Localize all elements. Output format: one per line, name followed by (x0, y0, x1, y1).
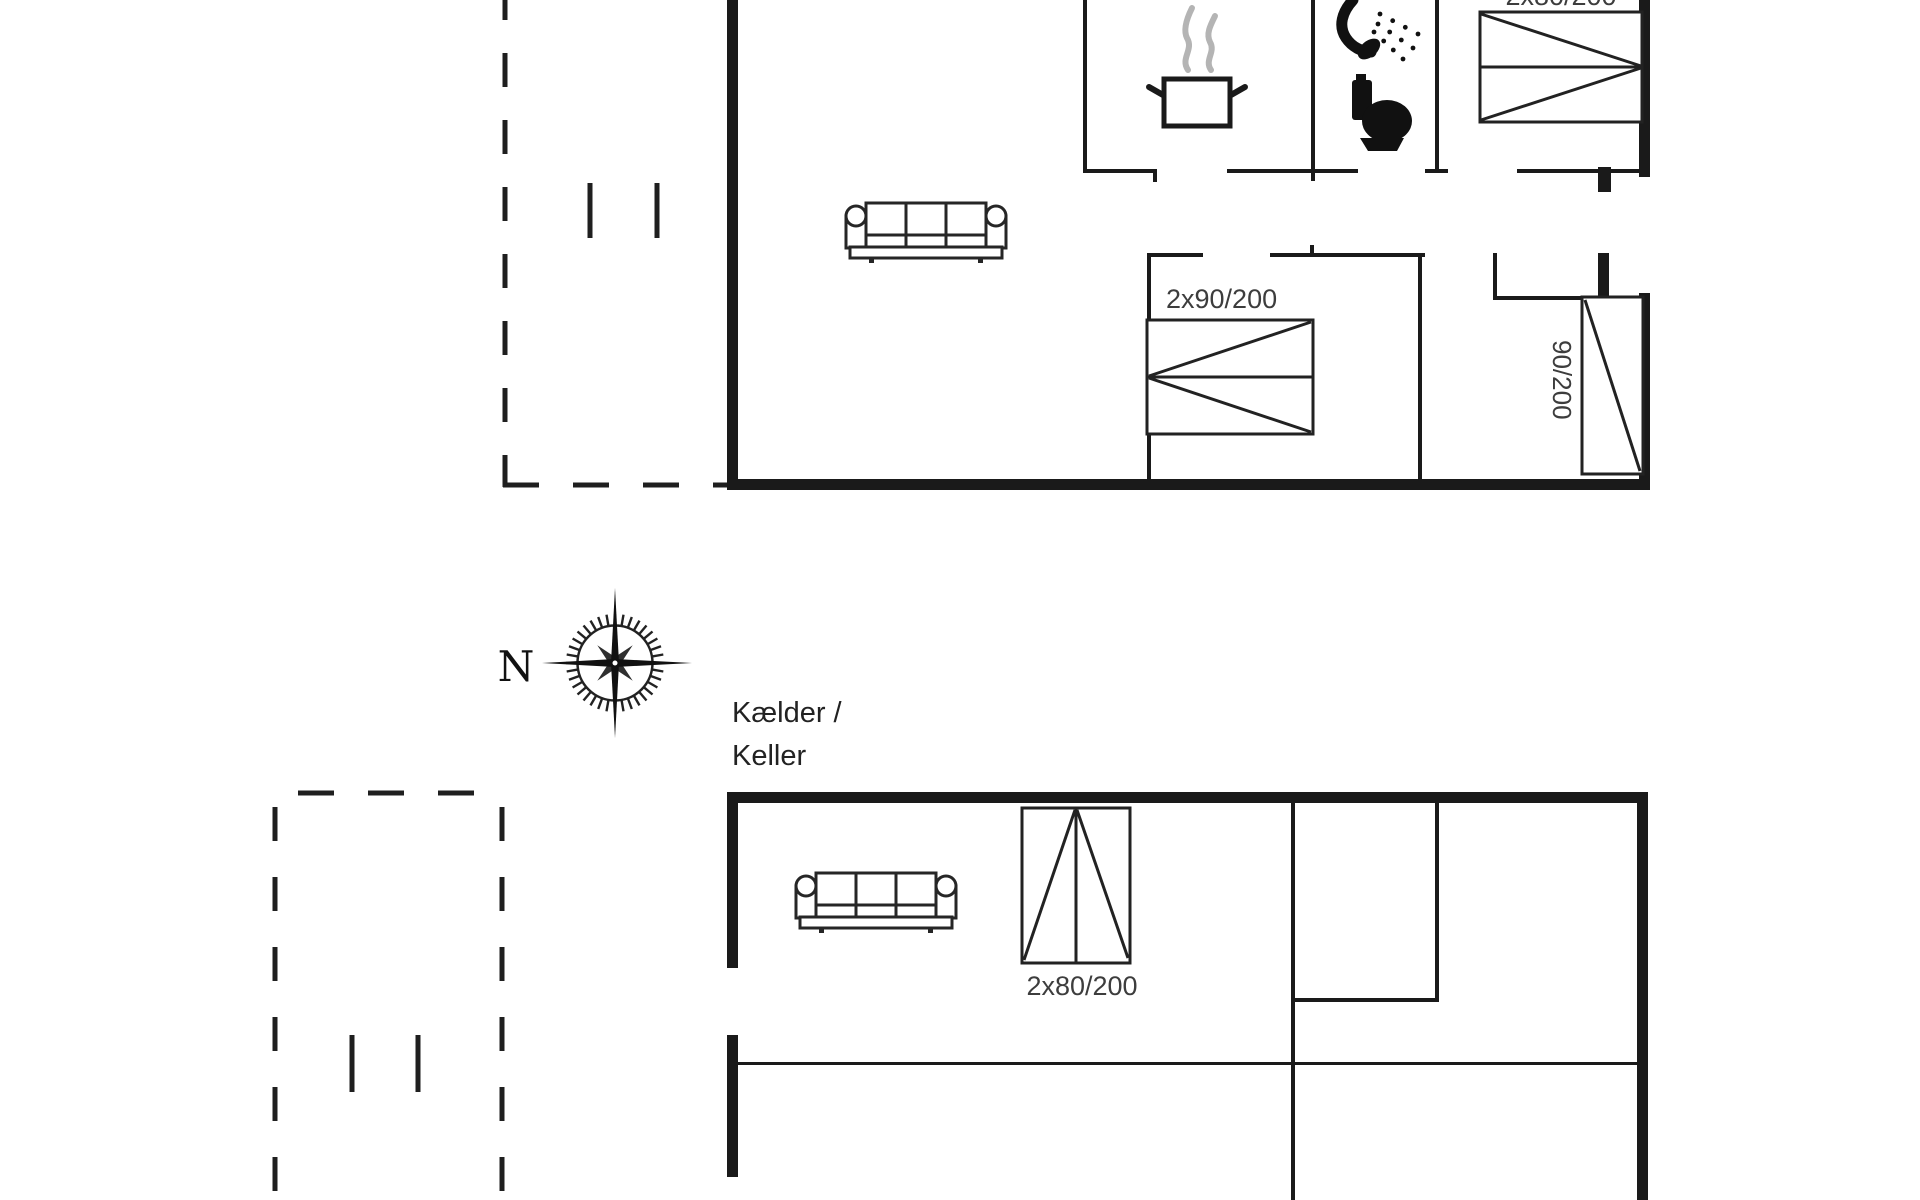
spray-dot (1381, 39, 1386, 44)
spray-dot (1416, 32, 1421, 37)
compass-tick (651, 676, 661, 680)
shower-spray-dots (1372, 12, 1421, 62)
spray-dot (1401, 57, 1406, 62)
compass-tick (584, 692, 591, 700)
spray-dot (1387, 30, 1392, 35)
spray-dot (1376, 22, 1381, 27)
floorplan-drawing: 2x80/200 2x90/200 90/200 N (0, 0, 1920, 1200)
compass-tick (622, 700, 624, 711)
compass-tick (607, 615, 609, 626)
spray-dot (1403, 25, 1408, 30)
compass-tick (651, 646, 661, 650)
bed-middle-label: 2x90/200 (1166, 284, 1277, 314)
bed-right-label: 90/200 (1547, 340, 1577, 420)
compass-tick (598, 699, 602, 709)
compass-tick (567, 655, 578, 657)
spray-dot (1372, 30, 1377, 35)
compass-rose-icon: N (498, 588, 692, 738)
bed-middle-2x90: 2x90/200 (1147, 284, 1313, 434)
compass-tick (573, 682, 583, 688)
upper-terrace-door-marks (590, 183, 657, 238)
bed-top-right-label: 2x80/200 (1505, 0, 1616, 11)
sofa-symbol-upper (846, 203, 1006, 263)
toilet-icon (1352, 74, 1412, 151)
spray-dot (1399, 38, 1404, 43)
compass-tick (648, 639, 658, 645)
compass-tick (591, 621, 597, 631)
bed-top-right-2x80: 2x80/200 (1480, 0, 1642, 122)
compass-tick (634, 696, 640, 706)
compass-tick (598, 617, 602, 627)
compass-tick (634, 621, 640, 631)
spray-dot (1391, 48, 1396, 53)
upper-floor-plan: 2x80/200 2x90/200 90/200 (503, 0, 1650, 490)
compass-tick (573, 639, 583, 645)
compass-tick (652, 670, 663, 672)
basement-floor-plan: Kælder / Keller (275, 697, 1648, 1200)
compass-tick (648, 682, 658, 688)
bathroom-area (1342, 0, 1421, 151)
spray-dot (1411, 46, 1416, 51)
compass-tick (622, 615, 624, 626)
compass-tick (652, 655, 663, 657)
compass-tick (628, 617, 632, 627)
compass-tick (607, 700, 609, 711)
cooking-pot-icon (1149, 79, 1245, 126)
basement-exterior-walls (727, 792, 1648, 1200)
compass-tick (644, 632, 652, 639)
basement-title-line1: Kælder / (732, 697, 843, 729)
kitchen-area (1149, 8, 1245, 126)
compass-tick (644, 687, 652, 694)
compass-tick (639, 626, 646, 634)
bed-basement-label: 2x80/200 (1026, 971, 1137, 1001)
bed-right-90: 90/200 (1547, 297, 1643, 474)
floorplan-page: 2x80/200 2x90/200 90/200 N (0, 0, 1920, 1200)
compass-tick (578, 632, 586, 639)
compass-tick (569, 646, 579, 650)
sofa-symbol-basement (796, 873, 956, 933)
compass-tick (567, 670, 578, 672)
basement-title-line2: Keller (732, 740, 806, 772)
compass-tick (591, 696, 597, 706)
compass-tick (569, 676, 579, 680)
steam-icon (1185, 8, 1215, 70)
upper-terrace-dashed-outline (503, 0, 738, 487)
compass-tick (628, 699, 632, 709)
bed-basement-2x80: 2x80/200 (1022, 808, 1138, 1001)
basement-terrace-door-marks (352, 1035, 418, 1092)
spray-dot (1378, 12, 1383, 17)
compass-tick (578, 687, 586, 694)
compass-north-label: N (498, 642, 535, 691)
basement-interior-walls (738, 803, 1639, 1200)
spray-dot (1390, 18, 1395, 23)
basement-terrace-dashed-outline (275, 793, 502, 1200)
shower-icon (1342, 0, 1421, 63)
compass-tick (584, 626, 591, 634)
compass-tick (639, 692, 646, 700)
